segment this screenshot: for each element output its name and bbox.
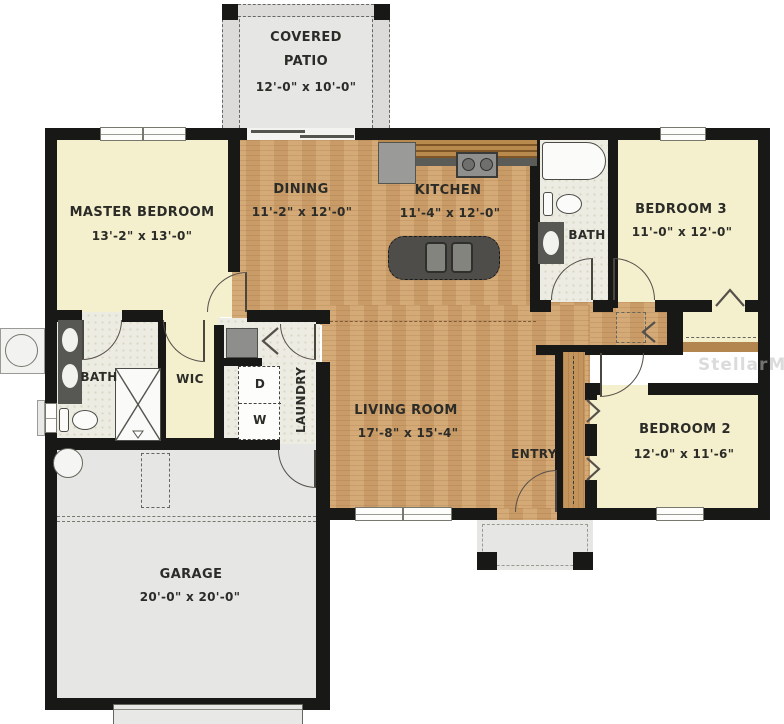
master-bedroom-label: MASTER BEDROOM [70,205,215,220]
wic-label: WIC [176,372,204,386]
bedroom3-dims: 11'-0" x 12'-0" [632,225,733,239]
master-window-divider [142,127,144,141]
wall-living-band [316,362,330,442]
bedroom2-closet-chevron-1 [584,398,602,424]
master-vanity [58,320,82,404]
island-sink-left [425,242,447,273]
garage-label: GARAGE [160,567,223,582]
wall-bottom-seg4 [704,508,770,520]
master-sink-1 [62,328,78,352]
room-master-bedroom-floor [50,135,235,317]
bedroom3-label: BEDROOM 3 [635,202,727,217]
bath-window-sill [37,400,45,436]
garage-door-panel-line [114,709,302,710]
wd-divider [239,403,281,404]
wall-bed2-left-seg2 [585,424,597,456]
bath2-toilet-bowl [556,194,582,214]
garage-door [113,704,303,724]
sliding-door-panel2 [300,135,354,138]
wall-bed3-bottom-seg2 [593,300,613,312]
washer-dryer-stack: D W [238,366,280,440]
bedroom2-window [656,507,704,521]
bath2-toilet-tank [543,192,553,216]
kitchen-island [388,236,500,280]
patio-post-left [222,4,238,20]
water-heater [53,448,83,478]
master-bedroom-dims: 13'-2" x 13'-0" [92,229,193,243]
stove-burner-left [462,158,475,171]
patio-label-line2: PATIO [284,54,328,69]
utility-equipment [226,328,258,358]
wall-band-top-seg3 [247,310,316,322]
laundry-label: LAUNDRY [294,358,308,442]
bath2-label: BATH [568,228,605,242]
patio-screen-wall-left [222,4,240,128]
kitchen-living-break-line [330,321,536,322]
wall-bottom-seg1 [318,508,355,520]
wall-bottom-seg2 [452,508,497,520]
closet-rod-line [573,356,574,504]
living-room-dims: 17'-8" x 15'-4" [358,426,459,440]
closet-shelf-line [686,337,756,338]
stove-burner-right [480,158,493,171]
wall-bed2-left-seg3 [585,480,597,510]
wall-band-top-seg2 [122,310,163,322]
bedroom3-closet-chevron [714,286,746,308]
patio-dims: 12'-0" x 10'-0" [256,80,357,94]
bathtub [542,142,606,180]
patio-label-line1: COVERED [270,30,342,45]
patio-post-right [374,4,390,20]
entry-label: ENTRY [511,447,557,461]
dryer-label: D [255,377,265,391]
bedroom2-closet-chevron-2 [584,456,602,482]
master-toilet-bowl [72,410,98,430]
bath2-vanity [538,222,564,264]
garage-dims: 20'-0" x 20'-0" [140,590,241,604]
living-window-divider [402,507,404,521]
wall-bed3-bottom-seg1 [536,300,551,312]
wall-right [758,128,770,520]
bath2-sink [543,231,559,255]
wall-wic-laundry [214,325,224,443]
porch-column-left [477,552,497,570]
wall-bottom-seg3 [557,508,656,520]
refrigerator [378,142,416,184]
living-room-label: LIVING ROOM [354,403,458,418]
closet-bifold-chevron [260,326,280,356]
wall-hall-post [667,307,683,352]
garage-header-line2 [57,521,316,522]
wall-garage-right [316,440,330,710]
wall-bed3-bottom-seg4 [745,300,770,312]
hall-closet-chevron [641,320,657,344]
bedroom3-window [660,127,706,141]
bedroom2-label: BEDROOM 2 [639,422,731,437]
master-toilet-tank [59,408,69,432]
watermark: StellarMLS [698,355,784,375]
kitchen-dims: 11'-4" x 12'-0" [400,206,501,220]
floor-plan: D W COVERED PATIO 12'-0" x 10'-0" [0,0,784,724]
shower-glass-x [115,368,161,441]
bedroom2-dims: 12'-0" x 11'-6" [634,447,735,461]
wall-bed3-bottom-seg3 [655,300,712,312]
bedroom2-reachin-closet [563,352,585,508]
closet-shelf-band [683,342,758,352]
wall-living-band-stub [316,310,330,324]
master-sink-2 [62,364,78,388]
sliding-door-panel1 [251,130,305,133]
porch-column-right [573,552,593,570]
patio-screen-wall-right [372,4,390,128]
wall-closet-bottom [214,358,262,366]
dining-label: DINING [273,182,328,197]
dining-dims: 11'-2" x 12'-0" [252,205,353,219]
stove [456,152,498,178]
bath-window [45,403,57,433]
kitchen-label: KITCHEN [415,183,482,198]
wall-master-dining [228,140,240,272]
patio-screen-wall-top [238,4,374,17]
ac-unit [5,334,38,367]
washer-label: W [253,413,267,427]
master-bath-label: BATH [80,370,117,384]
garage-header-line1 [57,516,316,517]
garage-dashed-platform [141,453,170,508]
island-sink-right [451,242,473,273]
wall-bed2-top-seg2 [648,383,758,395]
